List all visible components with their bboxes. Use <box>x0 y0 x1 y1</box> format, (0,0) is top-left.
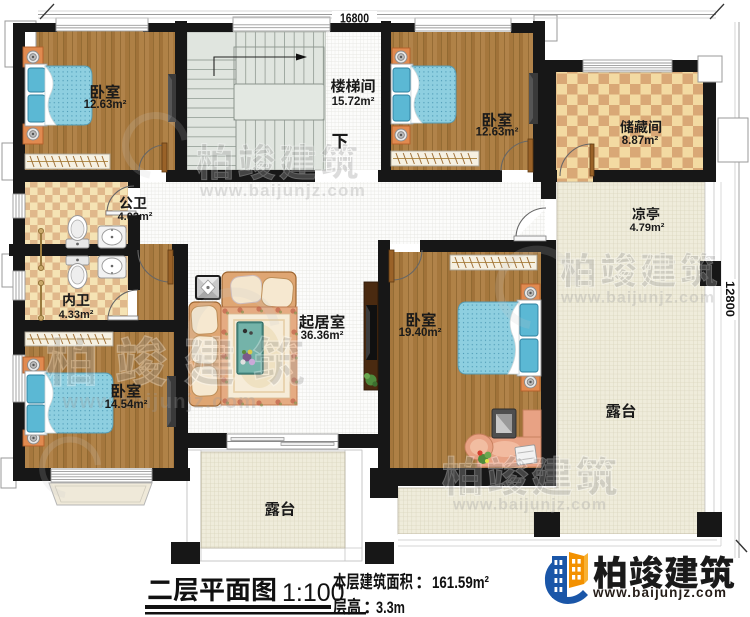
svg-text:19.40m²: 19.40m² <box>399 327 442 339</box>
svg-text:14.54m²: 14.54m² <box>105 399 148 411</box>
svg-text:：: ： <box>415 573 432 592</box>
svg-text:36.36m²: 36.36m² <box>301 330 344 342</box>
svg-text:www.baijunjz.com: www.baijunjz.com <box>560 290 715 307</box>
svg-text:4.79m²: 4.79m² <box>630 222 665 234</box>
svg-text:www.baijunjz.com: www.baijunjz.com <box>199 181 366 200</box>
svg-text:www.baijunjz.com: www.baijunjz.com <box>592 585 727 600</box>
svg-text:4.33m²: 4.33m² <box>59 309 94 321</box>
svg-text:3.3m: 3.3m <box>376 598 405 617</box>
svg-text:8.87m²: 8.87m² <box>622 135 659 147</box>
svg-text:12.63m²: 12.63m² <box>84 99 127 111</box>
svg-text:15.72m²: 15.72m² <box>332 96 375 108</box>
svg-text:4.02m²: 4.02m² <box>118 211 153 223</box>
svg-text:161.59m²: 161.59m² <box>432 573 489 592</box>
svg-text:12.63m²: 12.63m² <box>476 127 519 139</box>
svg-text:www.baijunjz.com: www.baijunjz.com <box>61 391 257 413</box>
svg-text:16800: 16800 <box>340 11 369 26</box>
svg-text:12800: 12800 <box>723 281 735 317</box>
svg-text:www.baijunjz.com: www.baijunjz.com <box>452 497 607 514</box>
